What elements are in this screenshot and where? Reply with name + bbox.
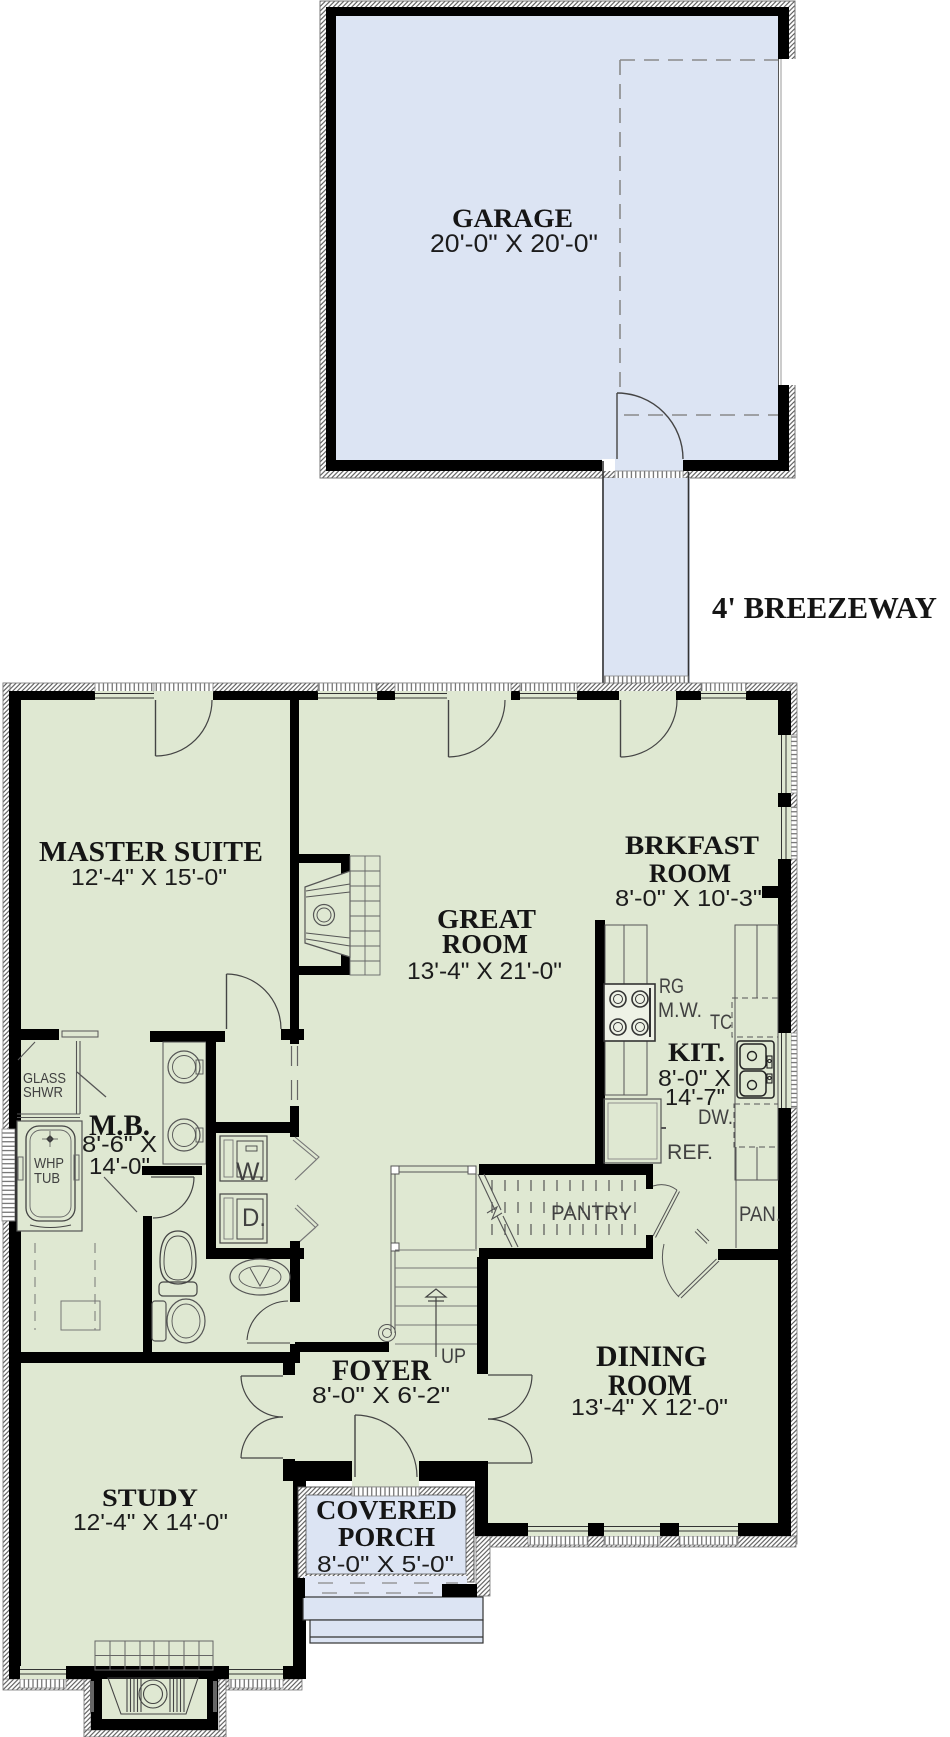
svg-text:TUB: TUB: [34, 1170, 60, 1187]
svg-text:TC: TC: [710, 1011, 732, 1034]
svg-text:KIT.: KIT.: [668, 1038, 725, 1067]
svg-text:M.W.: M.W.: [658, 999, 702, 1022]
svg-text:8'-0" X 10'-3": 8'-0" X 10'-3": [615, 885, 762, 911]
svg-text:PANTRY: PANTRY: [551, 1202, 632, 1225]
svg-text:COVERED: COVERED: [316, 1495, 457, 1525]
svg-text:PAN.: PAN.: [739, 1203, 781, 1226]
svg-text:20'-0" X 20'-0": 20'-0" X 20'-0": [430, 230, 598, 258]
svg-text:UP: UP: [441, 1345, 466, 1368]
svg-text:BRKFAST: BRKFAST: [625, 831, 759, 860]
svg-text:12'-4" X 15'-0": 12'-4" X 15'-0": [71, 864, 227, 890]
svg-text:13'-4" X 21'-0": 13'-4" X 21'-0": [407, 958, 562, 985]
svg-text:SHWR: SHWR: [23, 1084, 63, 1101]
svg-text:PORCH: PORCH: [338, 1522, 435, 1552]
svg-text:12'-4" X 14'-0": 12'-4" X 14'-0": [73, 1509, 228, 1535]
svg-text:D.: D.: [242, 1204, 266, 1232]
svg-text:GARAGE: GARAGE: [452, 204, 573, 233]
svg-text:13'-4" X 12'-0": 13'-4" X 12'-0": [571, 1394, 728, 1420]
svg-text:ROOM: ROOM: [649, 859, 731, 888]
svg-text:STUDY: STUDY: [102, 1485, 198, 1512]
svg-text:8'-0" X 6'-2": 8'-0" X 6'-2": [312, 1382, 450, 1408]
svg-text:14'-7": 14'-7": [665, 1084, 725, 1110]
svg-text:14'-0": 14'-0": [89, 1153, 150, 1179]
svg-text:8'-0" X 5'-0": 8'-0" X 5'-0": [317, 1551, 454, 1577]
svg-text:RG: RG: [659, 975, 684, 998]
svg-text:ROOM: ROOM: [442, 929, 528, 959]
svg-text:REF.: REF.: [667, 1141, 713, 1164]
svg-text:W.: W.: [236, 1158, 265, 1186]
svg-text:4' BREEZEWAY: 4' BREEZEWAY: [712, 590, 937, 625]
